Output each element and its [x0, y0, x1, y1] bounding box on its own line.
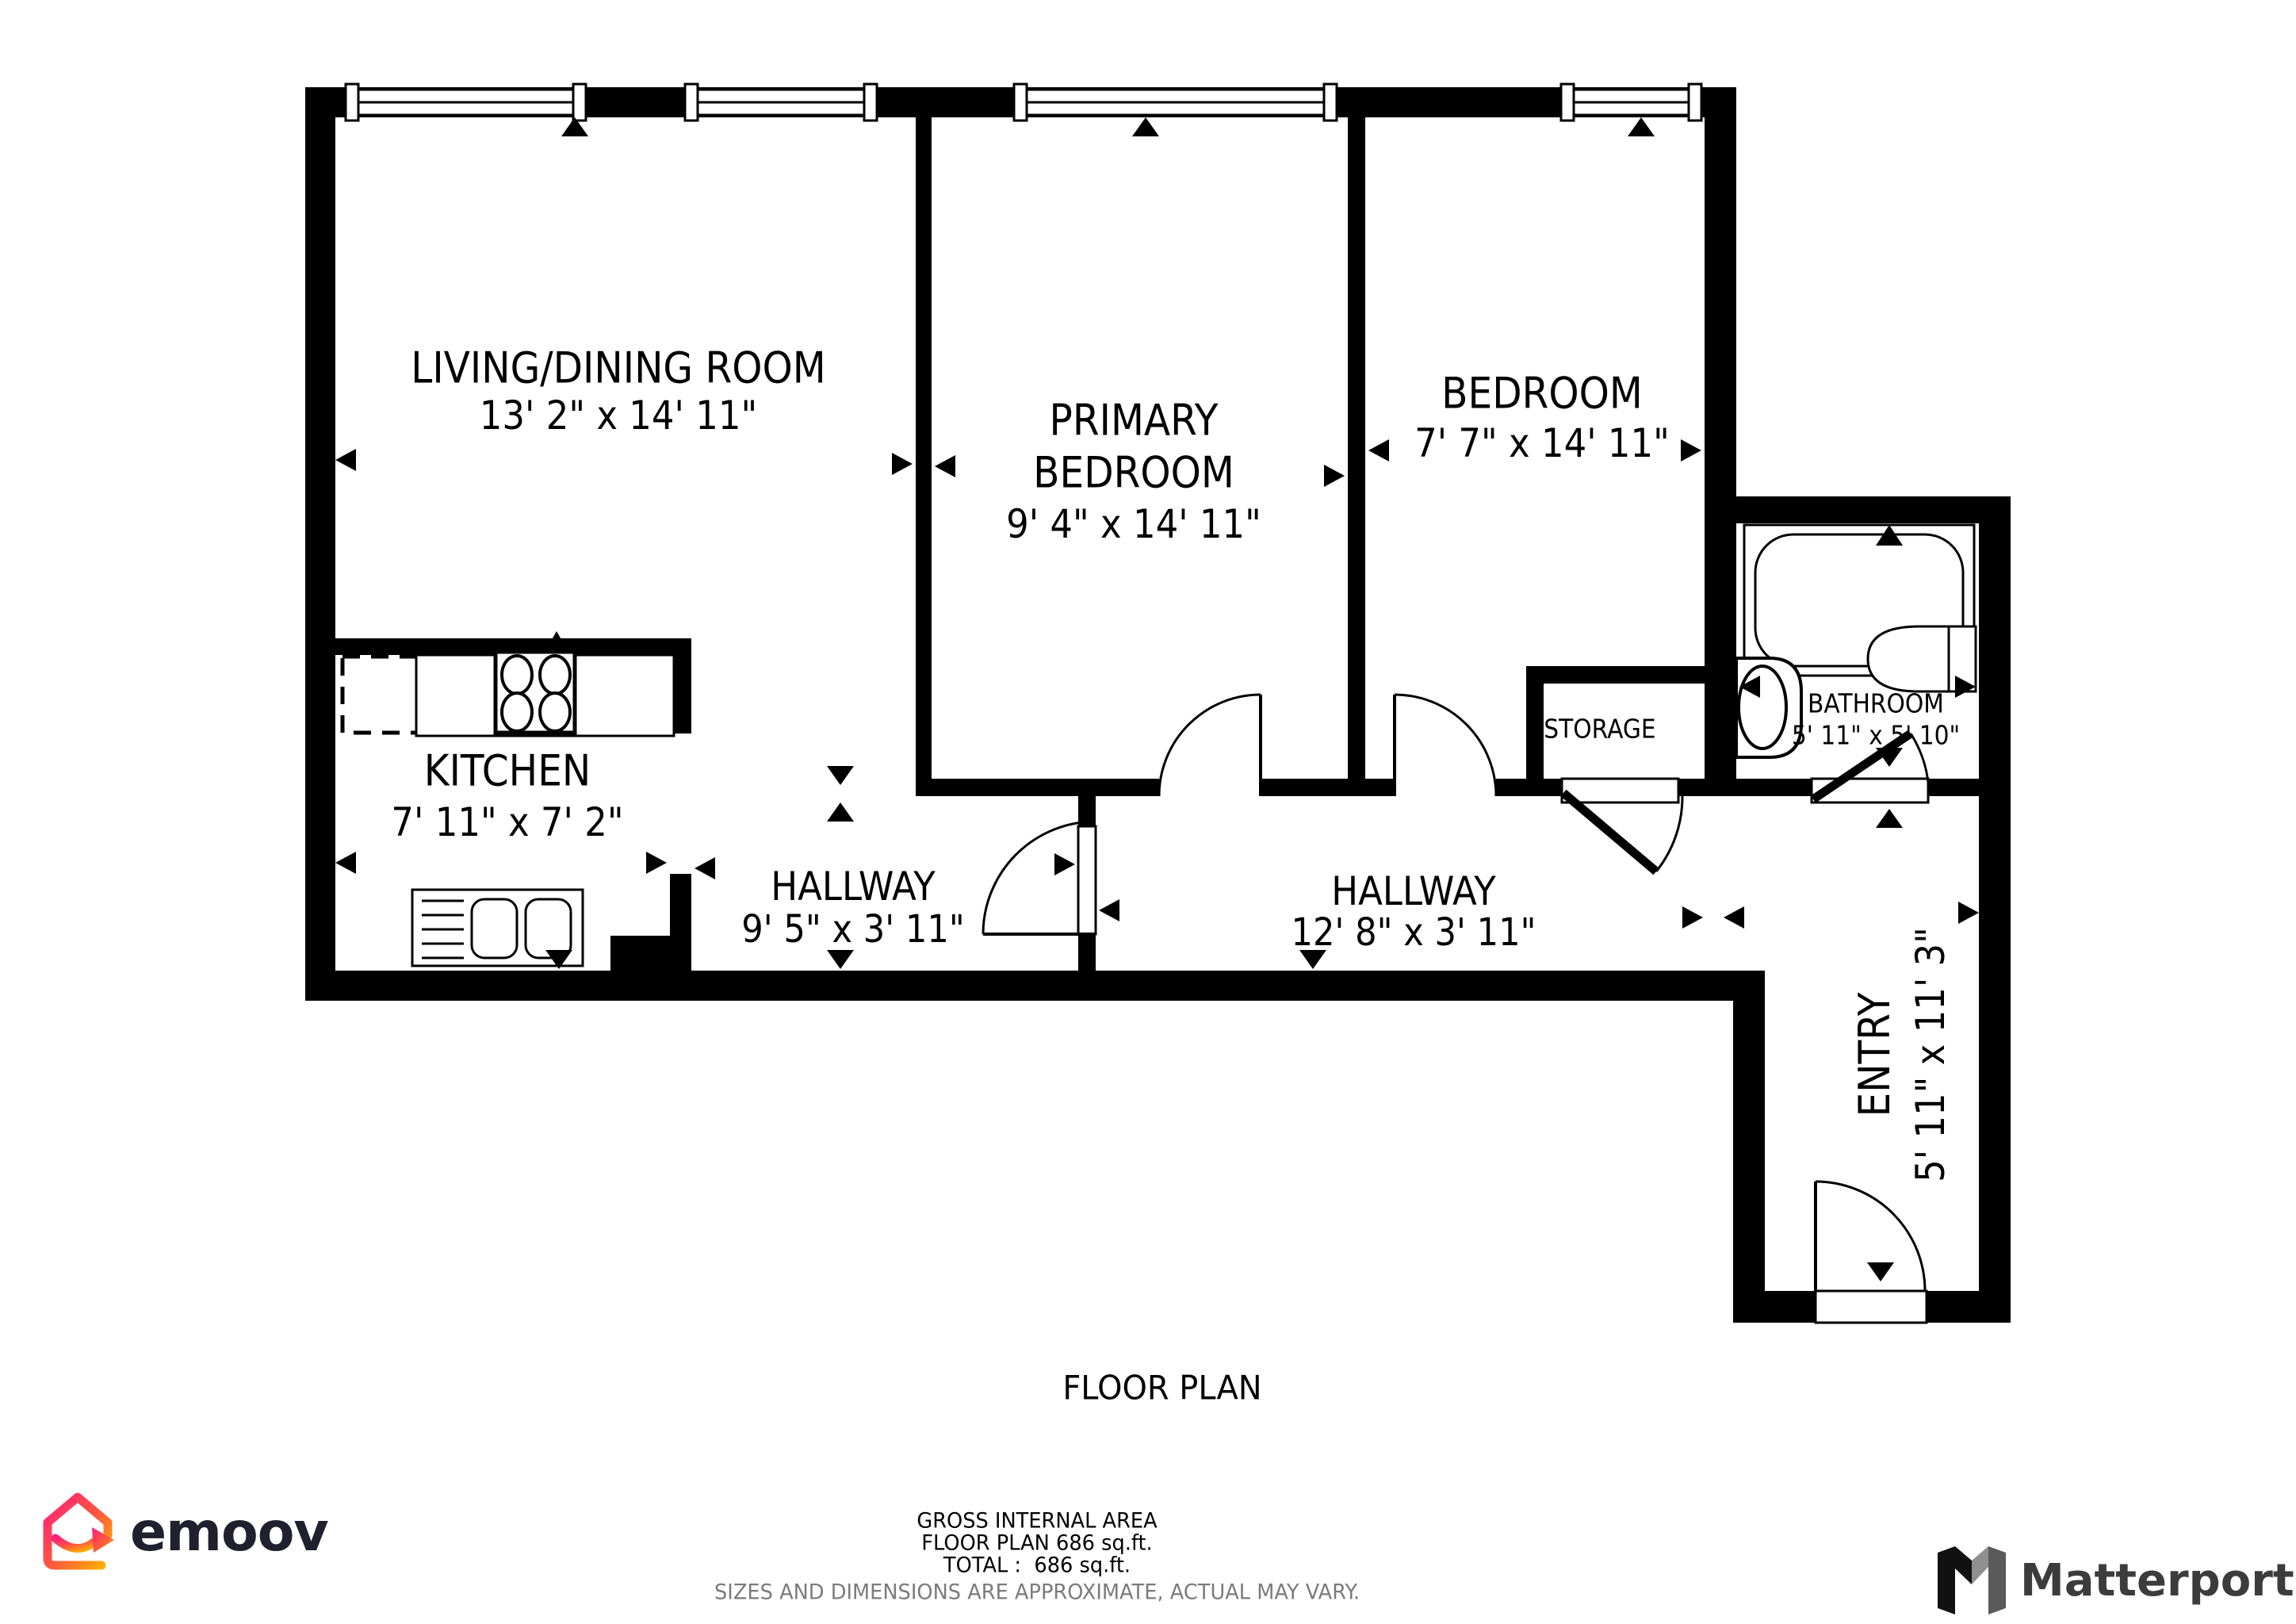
arrow-kitchen-left	[335, 852, 356, 874]
wall-bottom-main	[305, 971, 1765, 1001]
wall-kitchen-pillar	[610, 936, 670, 971]
footer-total-line: TOTAL : 686 sq.ft.	[943, 1553, 1131, 1578]
door-hallway	[983, 822, 1096, 934]
arrow-entry-right	[1958, 902, 1979, 924]
wall-right-lower	[1979, 496, 2011, 1323]
wall-kitchen-right-lower	[670, 874, 691, 971]
arrow-hall1-left	[695, 857, 715, 879]
door-entry-front	[1816, 1182, 1927, 1323]
wall-living-primary	[916, 117, 932, 796]
arrow-kitchen-right	[646, 852, 667, 874]
label-primary-dims: 9' 4" x 14' 11"	[1006, 504, 1261, 546]
wall-left	[305, 87, 335, 1001]
label-hallway1-dims: 9' 5" x 3' 11"	[741, 910, 964, 949]
wall-bathroom-top	[1705, 496, 2011, 523]
emoov-wordmark: emoov	[130, 1501, 328, 1564]
appliance-dashed-icon	[342, 657, 419, 733]
label-bathroom-name: BATHROOM	[1808, 691, 1944, 718]
label-bedroom-dims: 7' 7" x 14' 11"	[1414, 423, 1670, 465]
arrow-entry-door	[1867, 1262, 1894, 1281]
stove-icon	[496, 652, 575, 733]
door-bedroom	[1395, 695, 1496, 796]
label-hallway2-dims: 12' 8" x 3' 11"	[1291, 913, 1536, 952]
arrow-window-3	[1628, 117, 1655, 136]
wall-primary-bedroom	[1348, 117, 1365, 796]
arrow-hall1-top	[827, 802, 854, 822]
footer-area-line: FLOOR PLAN 686 sq.ft.	[921, 1531, 1152, 1556]
label-kitchen-dims: 7' 11" x 7' 2"	[391, 802, 623, 844]
arrow-bedroom-left	[1368, 439, 1389, 462]
arrow-living-bottom	[827, 766, 854, 785]
label-primary-name-1: PRIMARY	[1050, 399, 1219, 444]
label-bedroom-name: BEDROOM	[1441, 372, 1643, 417]
label-living-dims: 13' 2" x 14' 11"	[480, 395, 757, 437]
arrow-bedroom-right	[1681, 439, 1701, 462]
arrow-hall-door-left	[1099, 899, 1119, 921]
arrow-bathroom-door-up	[1876, 809, 1903, 828]
label-storage-name: STORAGE	[1544, 716, 1655, 744]
wall-rooms-bottom-5	[1928, 779, 2011, 796]
wall-storage-top	[1526, 666, 1705, 684]
wall-entry-bottom-left	[1733, 1291, 1816, 1323]
footer-disclaimer: SIZES AND DIMENSIONS ARE APPROXIMATE, AC…	[714, 1580, 1360, 1605]
footer-area-heading: GROSS INTERNAL AREA	[916, 1509, 1157, 1534]
arrow-primary-right	[1324, 465, 1345, 487]
arrow-primary-left	[935, 455, 955, 477]
label-entry: ENTRY 5' 11" x 11' 3"	[1847, 927, 1958, 1182]
matterport-m-icon	[1938, 1545, 2006, 1616]
door-primary-bedroom	[1159, 695, 1261, 796]
window-living-2	[685, 84, 877, 121]
label-hallway1-name: HALLWAY	[771, 866, 935, 908]
label-entry-name: ENTRY	[1847, 927, 1903, 1182]
arrow-hall-door-right	[1054, 853, 1075, 875]
window-bedroom	[1561, 84, 1701, 121]
matterport-logo: Matterport	[1938, 1545, 2294, 1616]
label-kitchen-name: KITCHEN	[424, 749, 591, 795]
wall-storage-left	[1526, 666, 1544, 796]
wall-rooms-bottom-1	[916, 779, 1159, 796]
plan-title: FLOOR PLAN	[1062, 1369, 1261, 1408]
label-bathroom-dims: 5' 11" x 5' 10"	[1792, 722, 1960, 750]
arrow-window-2	[1132, 117, 1159, 136]
arrow-hall2-right-b	[1724, 906, 1744, 929]
arrow-living-left	[335, 449, 356, 471]
wall-rooms-bottom-2	[1261, 779, 1395, 796]
wall-bathroom-left	[1705, 523, 1736, 796]
door-storage	[1562, 779, 1682, 871]
label-living-name: LIVING/DINING ROOM	[411, 347, 826, 392]
wall-entry-left	[1733, 996, 1765, 1291]
label-primary-name-2: BEDROOM	[1033, 451, 1234, 496]
wall-right-bedroom	[1705, 87, 1736, 523]
wall-rooms-bottom-4	[1678, 779, 1812, 796]
label-entry-dims: 5' 11" x 11' 3"	[1903, 927, 1958, 1182]
emoov-house-icon	[38, 1491, 117, 1573]
arrow-hall1-bottom	[827, 950, 854, 969]
window-living-1	[346, 84, 586, 121]
matterport-wordmark: Matterport	[2020, 1555, 2294, 1607]
label-hallway2-name: HALLWAY	[1331, 871, 1495, 913]
arrow-living-right	[892, 453, 913, 475]
wall-hall-divider-upper	[1078, 779, 1096, 826]
wall-entry-bottom-right	[1927, 1291, 2011, 1323]
wall-hall-divider-lower	[1078, 934, 1096, 971]
emoov-logo: emoov	[38, 1491, 328, 1573]
arrow-hall2-right-a	[1682, 906, 1703, 929]
window-primary	[1014, 84, 1337, 121]
